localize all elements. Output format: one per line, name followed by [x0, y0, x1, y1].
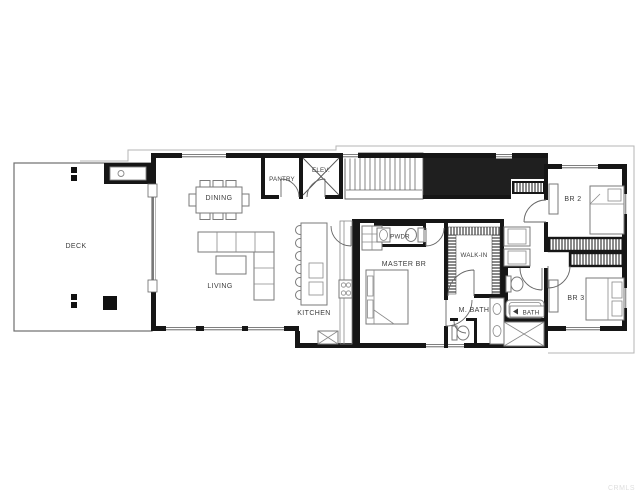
dining-chair: [226, 181, 236, 188]
bedroom2-door: [524, 200, 546, 222]
window: [248, 326, 284, 332]
toilet-tank: [506, 276, 511, 292]
bedroom3-closet: [570, 253, 623, 266]
dining-chair: [226, 213, 236, 220]
elevator-door: [307, 179, 325, 197]
dresser: [549, 184, 558, 214]
elevator-label: ELEV.: [312, 167, 330, 174]
watermark: CRMLS: [608, 485, 635, 492]
powder-door: [426, 228, 444, 246]
bed: [586, 278, 624, 320]
dining-chair: [200, 181, 210, 188]
master-bedroom-label: MASTER BR: [382, 261, 426, 268]
foyer-closet: [513, 182, 544, 193]
staircase: [345, 153, 423, 199]
dining-chair: [242, 194, 249, 206]
toilet-tank: [418, 228, 424, 242]
deck-label: DECK: [65, 243, 86, 250]
window: [204, 326, 242, 332]
pantry-label: PANTRY: [269, 176, 295, 183]
dining-chair: [200, 213, 210, 220]
bed: [590, 186, 624, 234]
floor-plan-svg: DECK DINING LIVING PANTRY ELEV. KITCHEN …: [0, 0, 640, 495]
bath-door: [520, 268, 542, 290]
burner-icon: [118, 171, 124, 177]
outdoor-fireplace: [104, 163, 152, 184]
bath-label: BATH: [523, 310, 540, 317]
window: [566, 326, 600, 332]
bedroom2-closet: [549, 238, 623, 251]
window: [166, 326, 196, 332]
kitchen-counter: [339, 221, 352, 344]
coffee-table: [216, 256, 246, 274]
dining-chair: [213, 213, 223, 220]
master-door: [331, 226, 351, 246]
toilet: [511, 277, 523, 291]
range-cooktop: [339, 280, 352, 298]
master-bath-label: M. BATH: [459, 307, 490, 314]
kitchen-island-group: [296, 223, 328, 305]
living-label: LIVING: [207, 283, 232, 290]
sink: [377, 228, 390, 242]
dining-label: DINING: [206, 195, 233, 202]
deck-column: [103, 296, 117, 310]
window: [496, 153, 512, 159]
dining-chair: [213, 181, 223, 188]
bedroom2-label: BR 2: [564, 196, 581, 203]
bath-label-group: BATH: [510, 306, 544, 317]
dining-chair: [189, 194, 196, 206]
hall-niches: [504, 227, 530, 266]
master-bed: [366, 270, 408, 324]
walk-in-label: WALK-IN: [461, 252, 488, 259]
kitchen-label: KITCHEN: [297, 310, 331, 317]
bedroom3-label: BR 3: [567, 295, 584, 302]
bedroom2-furniture: [549, 184, 624, 234]
powder-label: PWDR: [390, 234, 410, 241]
dresser: [549, 280, 558, 312]
vanity: [490, 298, 504, 344]
window: [562, 164, 598, 170]
window: [182, 153, 226, 159]
